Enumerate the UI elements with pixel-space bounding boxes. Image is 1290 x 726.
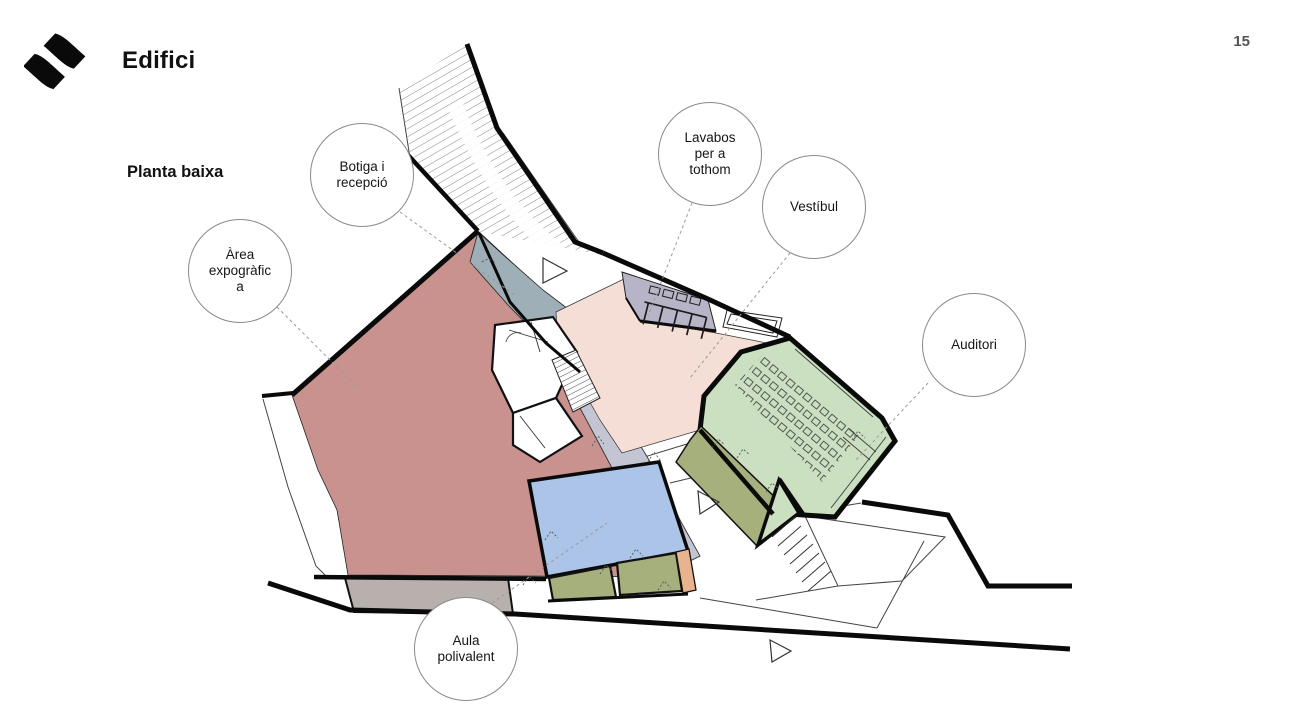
slide: Edifici Planta baixa 15 Àrea expogràfic …	[0, 0, 1290, 726]
label-bubble-area-expografica: Àrea expogràfic a	[188, 219, 292, 323]
label-bubble-auditori: Auditori	[922, 293, 1026, 397]
wave-logo-icon	[24, 22, 114, 112]
label-bubble-lavabos: Lavabos per a tothom	[658, 102, 762, 206]
page-title: Edifici	[122, 47, 195, 75]
page-number: 15	[1233, 33, 1250, 50]
label-bubble-aula-polivalent: Aula polivalent	[414, 597, 518, 701]
floor-plan-drawing	[0, 0, 1290, 726]
label-bubble-botiga-recepcio: Botiga i recepció	[310, 123, 414, 227]
entrance-ramp	[723, 310, 782, 337]
label-bubble-vestibul: Vestíbul	[762, 155, 866, 259]
hatched-path-band	[399, 44, 603, 255]
plan-subtitle: Planta baixa	[127, 163, 223, 182]
